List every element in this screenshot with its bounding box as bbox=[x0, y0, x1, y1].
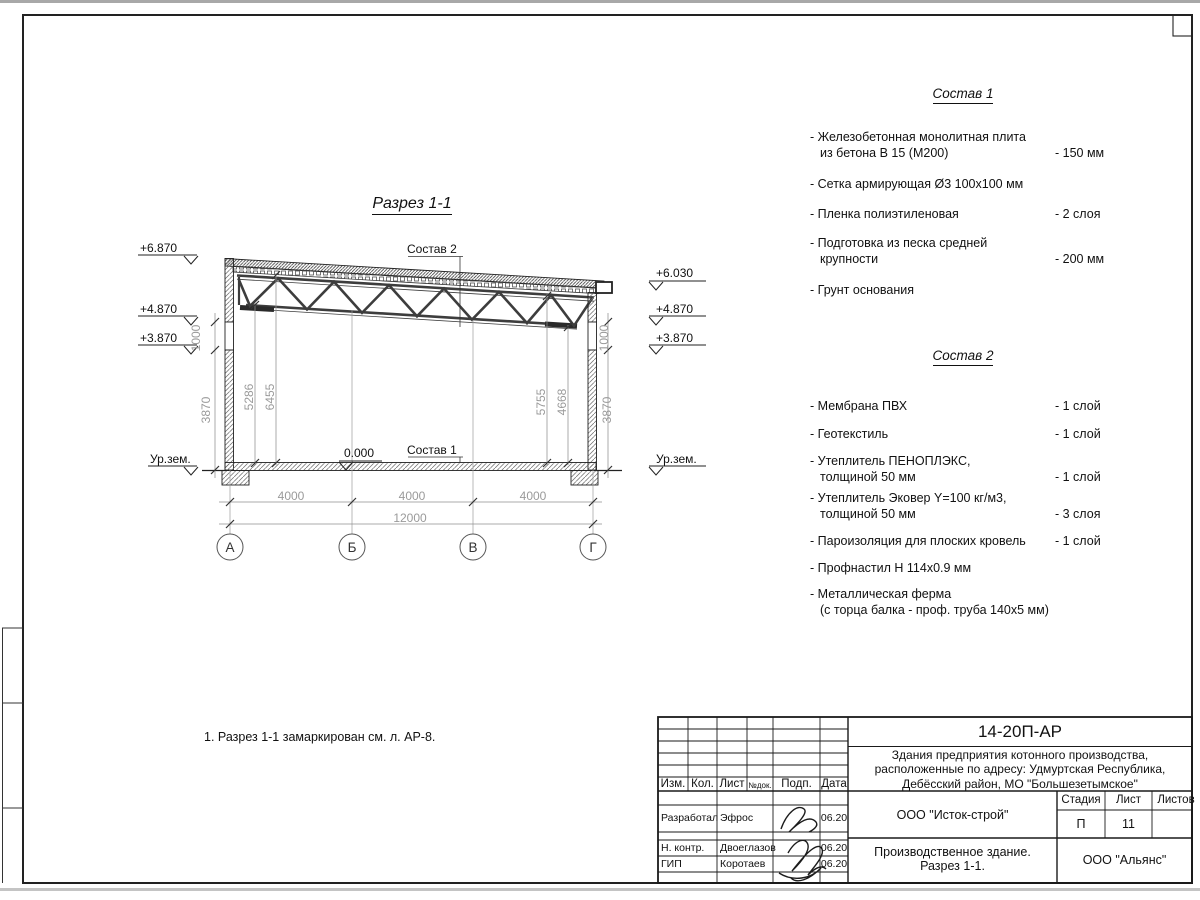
sheet-title-line1: Производственное здание. bbox=[848, 845, 1057, 859]
sheet-title: Производственное здание. Разрез 1-1. bbox=[848, 845, 1057, 873]
sheet-header: Лист bbox=[1105, 794, 1152, 806]
roof-assembly bbox=[225, 259, 612, 294]
elevation-right-3: +3.870 bbox=[656, 331, 693, 345]
drawing-title: Разрез 1-1 bbox=[366, 195, 458, 215]
dim-interior-4668: 4668 bbox=[555, 389, 569, 416]
axis-label-a: А bbox=[217, 540, 243, 555]
dim-span-1: 4000 bbox=[278, 489, 305, 503]
list-item: - Профнастил Н 114х0.9 мм bbox=[810, 561, 1125, 577]
document-number: 14-20П-АР bbox=[848, 722, 1192, 742]
zero-mark: 0.000 bbox=[344, 446, 374, 460]
axis-label-g: Г bbox=[580, 540, 606, 555]
elevation-left-1: +6.870 bbox=[140, 241, 177, 255]
elevation-right-1: +6.030 bbox=[656, 266, 693, 280]
dim-wall-left-1000: 1000 bbox=[189, 325, 203, 352]
col-header-izm: Изм. bbox=[658, 778, 688, 790]
left-margin-boxes bbox=[2, 628, 23, 883]
floor-slab bbox=[202, 463, 622, 486]
list-item: - Металлическая ферма(с торца балка - пр… bbox=[810, 587, 1125, 618]
sostav1-title: Состав 1 bbox=[798, 86, 1128, 104]
edge-beam bbox=[596, 282, 612, 293]
role-gip: ГИП bbox=[661, 858, 682, 870]
sheet-number: 11 bbox=[1105, 817, 1152, 831]
signature-razrabotal bbox=[781, 808, 817, 832]
dim-wall-right-3870: 3870 bbox=[600, 397, 614, 424]
dim-span-3: 4000 bbox=[520, 489, 547, 503]
sostav2-list: Состав 2 - Мембрана ПВХ - 1 слой - Геоте… bbox=[798, 348, 1128, 618]
list-item: - Сетка армирующая Ø3 100х100 мм bbox=[810, 177, 1125, 193]
project-name-line3: Дебёсский район, МО "Большезетымское" bbox=[850, 777, 1190, 791]
col-header-podp: Подп. bbox=[773, 778, 820, 790]
dim-wall-right-1000: 1000 bbox=[597, 325, 611, 352]
sostav1-ref-label: Состав 1 bbox=[407, 443, 457, 457]
sostav2-ref-label: Состав 2 bbox=[407, 242, 457, 256]
elevation-right-2: +4.870 bbox=[656, 302, 693, 316]
name-efros: Эфрос bbox=[720, 812, 753, 824]
elevation-left-3: +3.870 bbox=[140, 331, 177, 345]
dim-span-2: 4000 bbox=[399, 489, 426, 503]
col-header-list: Лист bbox=[717, 778, 747, 790]
ground-level-left: Ур.зем. bbox=[150, 452, 191, 466]
axis-label-b: Б bbox=[339, 540, 365, 555]
list-item: - Пароизоляция для плоских кровель - 1 с… bbox=[810, 534, 1125, 550]
project-name: Здания предприятия котонного производств… bbox=[850, 748, 1190, 791]
date-nkontr: 06.20 bbox=[820, 842, 848, 854]
sheets-total-header: Листов bbox=[1152, 794, 1200, 806]
date-razrabotal: 06.20 bbox=[820, 812, 848, 824]
list-item: - Железобетонная монолитная плитаиз бето… bbox=[810, 130, 1125, 161]
stage-header: Стадия bbox=[1057, 794, 1105, 806]
org-alyans: ООО "Альянс" bbox=[1057, 853, 1192, 867]
name-dvoeglazov: Двоеглазов bbox=[720, 842, 776, 854]
project-name-line1: Здания предприятия котонного производств… bbox=[850, 748, 1190, 762]
sheet-title-line2: Разрез 1-1. bbox=[848, 859, 1057, 873]
list-item: - Утеплитель ПЕНОПЛЭКС,толщиной 50 мм - … bbox=[810, 454, 1125, 485]
role-razrabotal: Разработал bbox=[661, 812, 718, 824]
ground-level-right: Ур.зем. bbox=[656, 452, 697, 466]
axis-circles bbox=[217, 534, 606, 560]
project-name-line2: расположенные по адресу: Удмуртская Респ… bbox=[850, 762, 1190, 776]
name-korotaev: Коротаев bbox=[720, 858, 765, 870]
axis-label-v: В bbox=[460, 540, 486, 555]
col-header-kol: Кол. bbox=[688, 778, 717, 790]
elevation-left-2: +4.870 bbox=[140, 302, 177, 316]
list-item: - Мембрана ПВХ - 1 слой bbox=[810, 399, 1125, 415]
sheet-note: 1. Разрез 1-1 замаркирован см. л. АР-8. bbox=[204, 730, 435, 744]
dim-total: 12000 bbox=[393, 511, 426, 525]
signatures bbox=[779, 808, 826, 881]
list-item: - Грунт основания bbox=[810, 283, 1125, 299]
sostav1-list: Состав 1 - Железобетонная монолитная пли… bbox=[798, 86, 1128, 306]
dim-interior-5286: 5286 bbox=[242, 384, 256, 411]
list-item: - Подготовка из песка среднейкрупности -… bbox=[810, 236, 1125, 267]
stage-value: П bbox=[1057, 817, 1105, 831]
col-header-data: Дата bbox=[820, 778, 848, 790]
list-item: - Пленка полиэтиленовая - 2 слоя bbox=[810, 207, 1125, 223]
col-header-ndok: №док. bbox=[747, 781, 773, 790]
role-nkontr: Н. контр. bbox=[661, 842, 704, 854]
list-item: - Геотекстиль - 1 слой bbox=[810, 427, 1125, 443]
screenshot-root: { "drawing": { "title": "Разрез 1-1", "n… bbox=[0, 0, 1200, 900]
dim-interior-6455: 6455 bbox=[263, 384, 277, 411]
list-item: - Утеплитель Эковер Y=100 кг/м3,толщиной… bbox=[810, 491, 1125, 522]
sostav2-title: Состав 2 bbox=[798, 348, 1128, 366]
corner-box bbox=[1173, 15, 1192, 36]
dim-wall-left-3870: 3870 bbox=[199, 397, 213, 424]
date-gip: 06.20 bbox=[820, 858, 848, 870]
dim-interior-5755: 5755 bbox=[534, 389, 548, 416]
org-istok-stroy: ООО "Исток-строй" bbox=[848, 808, 1057, 822]
